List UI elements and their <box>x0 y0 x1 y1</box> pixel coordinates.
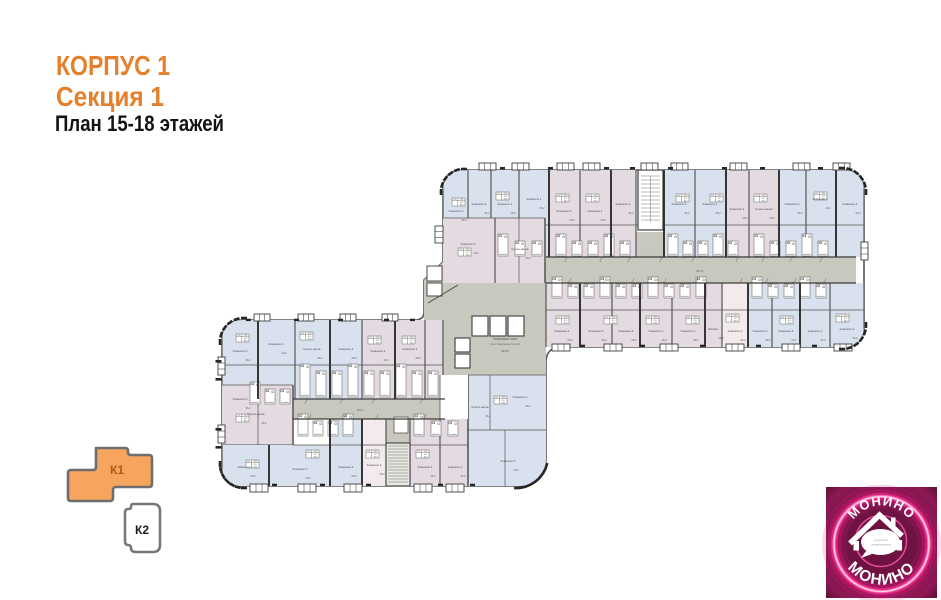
svg-text:2-к: 2-к <box>687 317 690 319</box>
svg-text:45.1: 45.1 <box>460 202 464 204</box>
svg-text:16.2: 16.2 <box>791 338 797 342</box>
svg-text:45.1: 45.1 <box>694 320 698 322</box>
svg-text:23.5: 23.5 <box>460 199 464 201</box>
svg-text:23.5: 23.5 <box>502 397 506 399</box>
svg-text:Холл безопасности №16: Холл безопасности №16 <box>490 342 520 346</box>
svg-text:45.1: 45.1 <box>504 196 508 198</box>
svg-text:2-к: 2-к <box>247 461 250 463</box>
svg-text:2-к: 2-к <box>557 317 560 319</box>
svg-text:Комната 1: Комната 1 <box>649 329 664 333</box>
svg-text:Комната 2: Комната 2 <box>843 202 858 206</box>
svg-text:16.2: 16.2 <box>631 338 637 342</box>
svg-text:Комната 1: Комната 1 <box>555 329 570 333</box>
svg-text:Кухня-ниша: Кухня-ниша <box>248 412 265 416</box>
svg-text:Комната 1: Комната 1 <box>403 347 418 351</box>
svg-text:45.1: 45.1 <box>762 198 766 200</box>
svg-text:16.2: 16.2 <box>250 474 256 478</box>
svg-text:48.0: 48.0 <box>694 323 698 325</box>
svg-text:16.2: 16.2 <box>261 421 267 425</box>
svg-text:48.0: 48.0 <box>504 199 508 201</box>
svg-text:2-к: 2-к <box>495 397 498 399</box>
svg-text:23.5: 23.5 <box>424 451 428 453</box>
svg-text:16.2: 16.2 <box>461 218 467 222</box>
svg-text:48.0: 48.0 <box>718 201 722 203</box>
svg-text:48.0: 48.0 <box>466 255 470 257</box>
svg-text:23.5: 23.5 <box>718 195 722 197</box>
svg-text:16.2: 16.2 <box>797 211 803 215</box>
svg-text:Комната 2: Комната 2 <box>589 329 604 333</box>
svg-text:23.5: 23.5 <box>244 335 248 337</box>
svg-text:16.2: 16.2 <box>430 474 436 478</box>
svg-text:16.2: 16.2 <box>281 351 287 355</box>
svg-text:2-к: 2-к <box>587 195 590 197</box>
svg-text:Комната 1: Комната 1 <box>730 207 745 211</box>
svg-text:91.57: 91.57 <box>696 269 704 273</box>
svg-text:2-к: 2-к <box>781 317 784 319</box>
svg-text:16.2: 16.2 <box>415 356 421 360</box>
svg-text:2-к: 2-к <box>403 337 406 339</box>
svg-text:2-к: 2-к <box>605 317 608 319</box>
svg-text:23.5: 23.5 <box>684 195 688 197</box>
svg-text:23.5: 23.5 <box>654 317 658 319</box>
svg-text:16.2: 16.2 <box>513 468 519 472</box>
svg-text:2-к: 2-к <box>727 315 730 317</box>
svg-text:Комната 3: Комната 3 <box>501 459 516 463</box>
svg-text:23.5: 23.5 <box>762 195 766 197</box>
svg-text:45.1: 45.1 <box>308 336 312 338</box>
svg-text:Комната 1: Комната 1 <box>813 197 828 201</box>
svg-text:2-к: 2-к <box>557 195 560 197</box>
svg-text:23.5: 23.5 <box>822 193 826 195</box>
svg-text:2-к: 2-к <box>497 193 500 195</box>
svg-text:2-к: 2-к <box>755 195 758 197</box>
svg-text:КОРПУС 1: КОРПУС 1 <box>56 50 170 81</box>
svg-text:23.5: 23.5 <box>734 315 738 317</box>
svg-text:16.2: 16.2 <box>305 476 311 480</box>
svg-text:48.0: 48.0 <box>788 323 792 325</box>
svg-text:16.2: 16.2 <box>820 338 826 342</box>
svg-text:16.2: 16.2 <box>525 256 531 260</box>
svg-text:45.1: 45.1 <box>466 252 470 254</box>
svg-text:Комната 2: Комната 2 <box>619 329 634 333</box>
svg-text:Комната 2: Комната 2 <box>233 349 248 353</box>
svg-text:36.55: 36.55 <box>501 349 509 353</box>
svg-text:Комната 2: Комната 2 <box>753 329 768 333</box>
svg-text:2-к: 2-к <box>237 335 240 337</box>
svg-text:48.0: 48.0 <box>244 341 248 343</box>
svg-text:48.0: 48.0 <box>594 201 598 203</box>
svg-text:Комната 1: Комната 1 <box>527 197 542 201</box>
svg-text:48.0: 48.0 <box>410 343 414 345</box>
svg-text:Холл: Холл <box>357 408 364 412</box>
svg-text:45.1: 45.1 <box>502 400 506 402</box>
svg-text:Жилая: Жилая <box>708 327 718 331</box>
svg-text:48.0: 48.0 <box>314 457 318 459</box>
svg-text:Комната 1: Комната 1 <box>728 329 743 333</box>
svg-text:16.2: 16.2 <box>693 338 699 342</box>
svg-text:23.5: 23.5 <box>376 337 380 339</box>
svg-text:48.0: 48.0 <box>654 323 658 325</box>
svg-text:16.2: 16.2 <box>769 216 775 220</box>
svg-text:16.2: 16.2 <box>765 338 771 342</box>
svg-text:45.1: 45.1 <box>844 318 848 320</box>
svg-text:Комната 2: Комната 2 <box>449 209 464 213</box>
svg-text:16.2: 16.2 <box>245 406 251 410</box>
svg-text:16.2: 16.2 <box>742 216 748 220</box>
svg-text:16.2: 16.2 <box>245 358 251 362</box>
svg-text:23.5: 23.5 <box>694 317 698 319</box>
svg-text:2-к: 2-к <box>367 451 370 453</box>
svg-text:Комната 2: Комната 2 <box>339 465 354 469</box>
svg-text:16.2: 16.2 <box>740 338 746 342</box>
svg-text:Комната 3: Комната 3 <box>779 329 794 333</box>
svg-text:45.1: 45.1 <box>424 454 428 456</box>
svg-text:Комната 2: Комната 2 <box>785 202 800 206</box>
svg-text:45.1: 45.1 <box>564 320 568 322</box>
svg-text:16.2: 16.2 <box>825 206 831 210</box>
svg-text:Комната 2: Комната 2 <box>672 202 687 206</box>
svg-text:Кухня-ниша: Кухня-ниша <box>512 247 529 251</box>
svg-text:45.1: 45.1 <box>374 454 378 456</box>
svg-text:К2: К2 <box>135 523 149 537</box>
svg-text:45.1: 45.1 <box>734 318 738 320</box>
svg-text:16.2: 16.2 <box>383 358 389 362</box>
svg-text:48.0: 48.0 <box>564 323 568 325</box>
svg-text:23.5: 23.5 <box>410 337 414 339</box>
svg-text:16.2: 16.2 <box>473 251 479 255</box>
svg-text:45.1: 45.1 <box>564 198 568 200</box>
svg-text:Комната 1: Комната 1 <box>269 342 284 346</box>
svg-text:23.5: 23.5 <box>466 249 470 251</box>
svg-text:Комната 1: Комната 1 <box>238 465 253 469</box>
svg-text:Комната 1: Комната 1 <box>616 202 631 206</box>
svg-text:23.5: 23.5 <box>308 333 312 335</box>
svg-text:16.2: 16.2 <box>567 338 573 342</box>
svg-text:23.5: 23.5 <box>612 317 616 319</box>
svg-text:2-к: 2-к <box>459 249 462 251</box>
svg-text:45.1: 45.1 <box>612 320 616 322</box>
svg-text:Комната 2: Комната 2 <box>808 329 823 333</box>
svg-text:45.1: 45.1 <box>718 198 722 200</box>
svg-text:Комната 1: Комната 1 <box>703 202 718 206</box>
svg-text:Лифтовый холл: Лифтовый холл <box>493 337 518 341</box>
svg-text:48.0: 48.0 <box>376 343 380 345</box>
svg-text:45.1: 45.1 <box>684 198 688 200</box>
svg-text:2-к: 2-к <box>417 451 420 453</box>
svg-text:2-к: 2-к <box>301 333 304 335</box>
svg-text:2-к: 2-к <box>837 315 840 317</box>
svg-text:16.2: 16.2 <box>379 472 385 476</box>
svg-text:16.2: 16.2 <box>601 338 607 342</box>
svg-text:45.1: 45.1 <box>254 464 258 466</box>
svg-text:48.0: 48.0 <box>844 321 848 323</box>
svg-text:45.1: 45.1 <box>788 320 792 322</box>
svg-text:2-к: 2-к <box>453 199 456 201</box>
svg-text:48.0: 48.0 <box>308 339 312 341</box>
svg-text:Комната 1: Комната 1 <box>367 463 382 467</box>
svg-text:45.1: 45.1 <box>244 418 248 420</box>
svg-text:Комната 2: Комната 2 <box>557 209 572 213</box>
svg-text:16.2: 16.2 <box>718 336 724 340</box>
svg-text:23.5: 23.5 <box>844 315 848 317</box>
svg-text:23.5: 23.5 <box>374 451 378 453</box>
svg-text:Кухня-ниша: Кухня-ниша <box>472 405 489 409</box>
svg-text:16.2: 16.2 <box>569 218 575 222</box>
svg-text:48.0: 48.0 <box>734 321 738 323</box>
svg-text:23.5: 23.5 <box>788 317 792 319</box>
svg-text:48.0: 48.0 <box>502 403 506 405</box>
svg-text:23.5: 23.5 <box>564 195 568 197</box>
svg-text:Комната 2: Комната 2 <box>448 465 463 469</box>
svg-text:45.1: 45.1 <box>654 320 658 322</box>
svg-text:16.2: 16.2 <box>351 356 357 360</box>
svg-text:23.5: 23.5 <box>254 461 258 463</box>
svg-text:45.1: 45.1 <box>410 340 414 342</box>
svg-text:16.2: 16.2 <box>460 474 466 478</box>
svg-text:45.1: 45.1 <box>314 454 318 456</box>
svg-text:16.2: 16.2 <box>852 336 858 340</box>
svg-text:16.2: 16.2 <box>510 211 516 215</box>
svg-text:48.0: 48.0 <box>244 421 248 423</box>
svg-text:48.0: 48.0 <box>374 457 378 459</box>
svg-text:16.2: 16.2 <box>484 211 490 215</box>
svg-text:2-к: 2-к <box>237 415 240 417</box>
svg-text:Комната 2: Комната 2 <box>472 202 487 206</box>
svg-text:16.2: 16.2 <box>855 211 861 215</box>
svg-text:К1: К1 <box>110 463 124 477</box>
svg-text:48.0: 48.0 <box>460 205 464 207</box>
svg-text:недвижимости: недвижимости <box>871 543 892 547</box>
svg-text:2-к: 2-к <box>647 317 650 319</box>
svg-text:Комната 1: Комната 1 <box>418 465 433 469</box>
svg-text:16.2: 16.2 <box>684 211 690 215</box>
svg-text:45.1: 45.1 <box>244 338 248 340</box>
svg-text:45.1: 45.1 <box>376 340 380 342</box>
svg-text:16.2: 16.2 <box>485 414 491 418</box>
svg-text:48.0: 48.0 <box>424 457 428 459</box>
svg-text:2-к: 2-к <box>677 195 680 197</box>
svg-text:Комната 2: Комната 2 <box>339 347 354 351</box>
svg-text:Комната 1: Комната 1 <box>461 242 476 246</box>
svg-text:2-к: 2-к <box>711 195 714 197</box>
svg-text:План 15-18 этажей: План 15-18 этажей <box>55 111 224 136</box>
svg-text:Комната 1: Комната 1 <box>498 202 513 206</box>
svg-text:Комната 2: Комната 2 <box>840 327 855 331</box>
svg-text:2-к: 2-к <box>369 337 372 339</box>
svg-text:48.0: 48.0 <box>762 201 766 203</box>
svg-text:23.5: 23.5 <box>314 451 318 453</box>
svg-text:Кухня-ниша: Кухня-ниша <box>304 347 321 351</box>
svg-text:48.0: 48.0 <box>564 201 568 203</box>
svg-text:16.2: 16.2 <box>317 356 323 360</box>
svg-text:45.1: 45.1 <box>594 198 598 200</box>
svg-text:16.2: 16.2 <box>525 404 531 408</box>
svg-text:16.2: 16.2 <box>539 206 545 210</box>
svg-text:23.5: 23.5 <box>504 193 508 195</box>
svg-text:16.2: 16.2 <box>628 211 634 215</box>
svg-text:48.0: 48.0 <box>612 323 616 325</box>
svg-text:Комната 2: Комната 2 <box>371 349 386 353</box>
svg-text:2-к: 2-к <box>307 451 310 453</box>
svg-text:16.2: 16.2 <box>715 211 721 215</box>
svg-text:Комната 1: Комната 1 <box>513 395 528 399</box>
svg-text:Кухня-ниша: Кухня-ниша <box>756 207 773 211</box>
svg-text:48.0: 48.0 <box>254 467 258 469</box>
svg-text:16.2: 16.2 <box>600 218 606 222</box>
svg-text:Агентство: Агентство <box>874 538 888 542</box>
svg-text:23.5: 23.5 <box>594 195 598 197</box>
svg-text:23.5: 23.5 <box>564 317 568 319</box>
svg-text:16.2: 16.2 <box>661 338 667 342</box>
svg-text:Секция 1: Секция 1 <box>56 81 164 112</box>
svg-text:Комната 2: Комната 2 <box>233 397 248 401</box>
svg-text:Комната 1: Комната 1 <box>681 329 696 333</box>
svg-text:2-к: 2-к <box>815 193 818 195</box>
svg-text:Комната 1: Комната 1 <box>293 467 308 471</box>
svg-text:16.2: 16.2 <box>351 474 357 478</box>
svg-text:Комната 1: Комната 1 <box>588 209 603 213</box>
